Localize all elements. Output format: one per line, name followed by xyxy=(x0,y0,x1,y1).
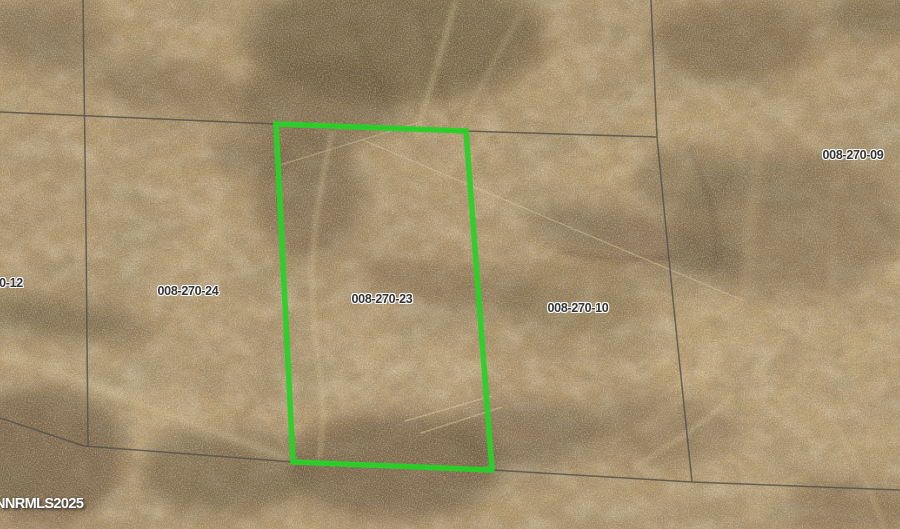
parcel-label-23: 008-270-23 xyxy=(352,292,413,306)
parcel-label-24: 008-270-24 xyxy=(158,284,219,298)
parcel-label-10: 008-270-10 xyxy=(548,301,609,315)
parcel-label-12-partial: 0-12 xyxy=(0,276,23,290)
parcel-map: 0-12 008-270-24 008-270-23 008-270-10 00… xyxy=(0,0,900,529)
aerial-imagery[interactable] xyxy=(0,0,900,529)
mls-watermark: NNRMLS2025 xyxy=(0,496,83,512)
parcel-label-09: 008-270-09 xyxy=(823,148,884,162)
